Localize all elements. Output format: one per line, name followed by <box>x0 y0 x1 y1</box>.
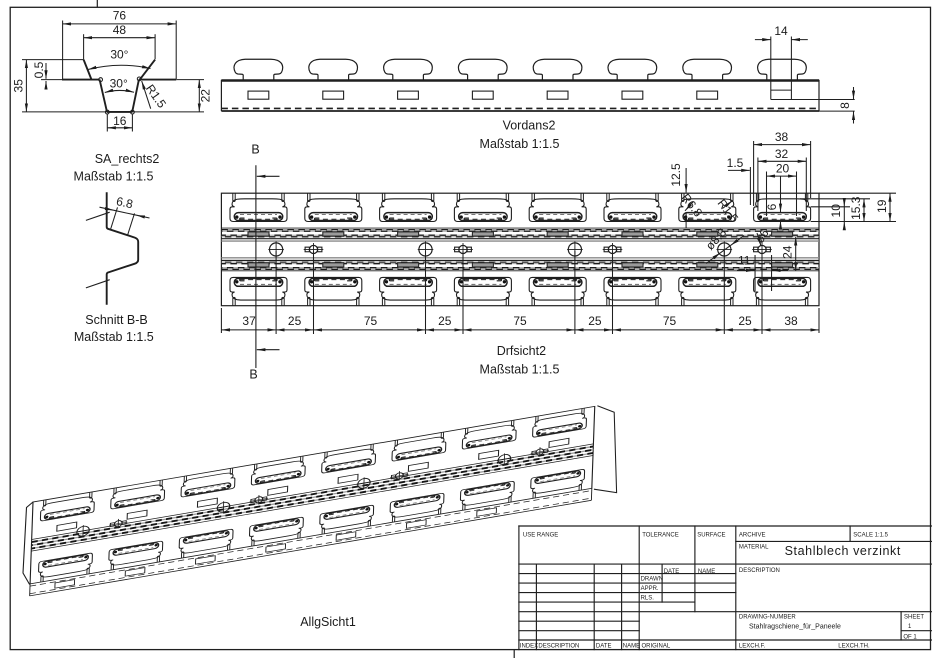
svg-text:DATE: DATE <box>664 569 680 575</box>
svg-text:Drfsicht2: Drfsicht2 <box>497 344 546 358</box>
svg-text:25: 25 <box>288 314 302 328</box>
svg-text:25: 25 <box>438 314 452 328</box>
svg-text:ORIGINAL: ORIGINAL <box>642 644 671 650</box>
svg-text:20: 20 <box>776 161 790 175</box>
svg-text:11: 11 <box>738 253 751 267</box>
svg-text:SURFACE: SURFACE <box>697 532 725 538</box>
svg-text:8: 8 <box>838 102 852 109</box>
svg-text:76: 76 <box>113 9 127 23</box>
svg-text:B: B <box>251 143 259 157</box>
svg-text:NAME: NAME <box>623 644 640 650</box>
svg-text:Maßstab 1:1.5: Maßstab 1:1.5 <box>74 170 154 184</box>
svg-text:75: 75 <box>663 314 677 328</box>
svg-text:SA_rechts2: SA_rechts2 <box>95 152 160 166</box>
svg-text:10: 10 <box>829 204 843 218</box>
svg-text:DESCRIPTION: DESCRIPTION <box>739 568 780 574</box>
svg-text:Maßstab 1:1.5: Maßstab 1:1.5 <box>480 137 560 151</box>
svg-text:DESCRIPTION: DESCRIPTION <box>538 644 579 650</box>
svg-text:30°: 30° <box>110 77 128 91</box>
svg-text:TOLERANCE: TOLERANCE <box>642 532 679 538</box>
svg-text:OF 1: OF 1 <box>903 635 917 641</box>
svg-text:12.5: 12.5 <box>669 163 683 187</box>
svg-text:NAME: NAME <box>698 569 715 575</box>
svg-text:19: 19 <box>875 199 889 213</box>
svg-text:25: 25 <box>588 314 602 328</box>
svg-text:SHEET: SHEET <box>904 614 924 620</box>
svg-text:MATERIAL: MATERIAL <box>739 544 769 550</box>
svg-text:LEXCH.F.: LEXCH.F. <box>739 644 766 650</box>
svg-text:SCALE 1:1.5: SCALE 1:1.5 <box>853 532 888 538</box>
svg-text:22: 22 <box>199 89 213 103</box>
svg-text:Schnitt B-B: Schnitt B-B <box>85 313 148 327</box>
svg-text:DRAWING-NUMBER: DRAWING-NUMBER <box>739 614 796 620</box>
svg-text:APPR.: APPR. <box>641 586 659 592</box>
svg-text:USE RANGE: USE RANGE <box>523 532 558 538</box>
svg-text:Maßstab 1:1.5: Maßstab 1:1.5 <box>74 330 154 344</box>
svg-text:75: 75 <box>513 314 527 328</box>
svg-text:1: 1 <box>908 624 912 630</box>
svg-text:25: 25 <box>738 314 752 328</box>
svg-text:Vordans2: Vordans2 <box>503 119 556 133</box>
svg-text:AllgSicht1: AllgSicht1 <box>300 615 356 629</box>
svg-text:B: B <box>249 368 257 382</box>
svg-text:DRAWN: DRAWN <box>641 577 663 583</box>
svg-text:15.3: 15.3 <box>849 196 863 220</box>
svg-text:48: 48 <box>113 23 127 37</box>
svg-text:LEXCH.TH.: LEXCH.TH. <box>838 644 870 650</box>
svg-text:DATE: DATE <box>596 644 612 650</box>
svg-text:RLS.: RLS. <box>641 596 655 602</box>
svg-text:35: 35 <box>12 79 26 93</box>
svg-text:1.5: 1.5 <box>727 156 744 170</box>
svg-text:38: 38 <box>775 130 789 144</box>
svg-text:Maßstab 1:1.5: Maßstab 1:1.5 <box>480 362 560 376</box>
svg-text:16: 16 <box>113 114 127 128</box>
svg-text:32: 32 <box>775 147 789 161</box>
svg-text:ARCHIVE: ARCHIVE <box>739 532 766 538</box>
svg-text:38: 38 <box>784 314 798 328</box>
svg-text:14: 14 <box>774 24 788 38</box>
svg-text:INDEX: INDEX <box>520 644 538 650</box>
svg-text:75: 75 <box>364 314 378 328</box>
svg-text:24: 24 <box>781 245 795 259</box>
svg-text:Stahlblech verzinkt: Stahlblech verzinkt <box>785 544 901 558</box>
svg-text:6.8: 6.8 <box>115 194 135 211</box>
svg-text:6: 6 <box>765 203 779 210</box>
svg-text:0.5: 0.5 <box>32 61 46 78</box>
svg-text:30°: 30° <box>110 48 128 62</box>
svg-text:37: 37 <box>242 314 256 328</box>
svg-text:Stahlragschiene_für_Paneele: Stahlragschiene_für_Paneele <box>749 623 841 630</box>
